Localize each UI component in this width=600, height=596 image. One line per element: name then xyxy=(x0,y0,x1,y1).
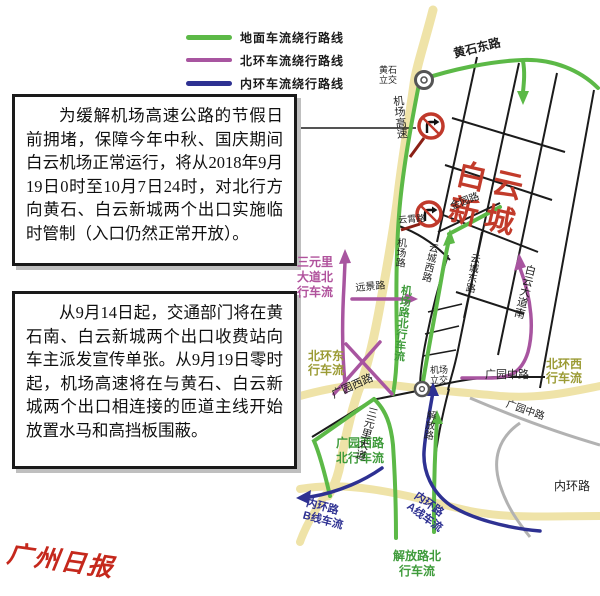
legend-swatch-navy xyxy=(186,81,232,86)
label-inner-ring-road: 内环路 xyxy=(554,479,590,493)
label-yunxiao-road: 云霄路 xyxy=(398,213,426,226)
label-jiefang-road-north-flow: 解放路北 行车流 xyxy=(386,549,448,579)
legend-item-ground: 地面车流绕行路线 xyxy=(186,30,344,44)
road-guangyuan-middle-east xyxy=(470,398,600,445)
legend: 地面车流绕行路线 北环车流绕行路线 内环车流绕行路线 xyxy=(186,30,344,99)
huangshi-interchange-icon xyxy=(416,72,433,89)
label-airport-interchange: 机场 立交 xyxy=(430,365,448,385)
traffic-detour-infographic: 地面车流绕行路线 北环车流绕行路线 内环车流绕行路线 为缓解机场高速公路的节假日… xyxy=(0,0,600,596)
legend-swatch-purple xyxy=(186,58,232,62)
legend-item-inner-ring: 内环车流绕行路线 xyxy=(186,76,344,90)
legend-label: 北环车流绕行路线 xyxy=(240,52,344,69)
airport-interchange-icon xyxy=(415,382,429,396)
notice-text: 为缓解机场高速公路的节假日前拥堵，保障今年中秋、国庆期间白云机场正常运行，将从2… xyxy=(26,104,283,245)
legend-label: 地面车流绕行路线 xyxy=(240,29,344,46)
label-sanyuanli-avenue-north-flow: 三元里 大道北 行车流 xyxy=(297,255,333,300)
label-north-ring-westbound-flow: 北环西 行车流 xyxy=(546,357,582,385)
notice-box-leaflet: 从9月14日起，交通部门将在黄石南、白云新城两个出口收费站向车主派发宣传单张。从… xyxy=(12,291,297,469)
legend-item-north-ring: 北环车流绕行路线 xyxy=(186,53,344,67)
label-north-ring-eastbound-flow: 北环东 行车流 xyxy=(308,349,344,377)
legend-swatch-green xyxy=(186,35,232,40)
no-right-turn-sign-huangshi xyxy=(419,114,443,138)
label-huangshi-interchange: 黄石 立交 xyxy=(379,65,397,85)
notice-text: 从9月14日起，交通部门将在黄石南、白云新城两个出口收费站向车主派发宣传单张。从… xyxy=(26,301,283,442)
notice-box-control: 为缓解机场高速公路的节假日前拥堵，保障今年中秋、国庆期间白云机场正常运行，将从2… xyxy=(12,94,297,266)
sign-tail-huangshi xyxy=(410,138,424,157)
legend-label: 内环车流绕行路线 xyxy=(240,75,344,92)
label-guangyuan-middle-road-1: 广园中路 xyxy=(485,369,529,382)
